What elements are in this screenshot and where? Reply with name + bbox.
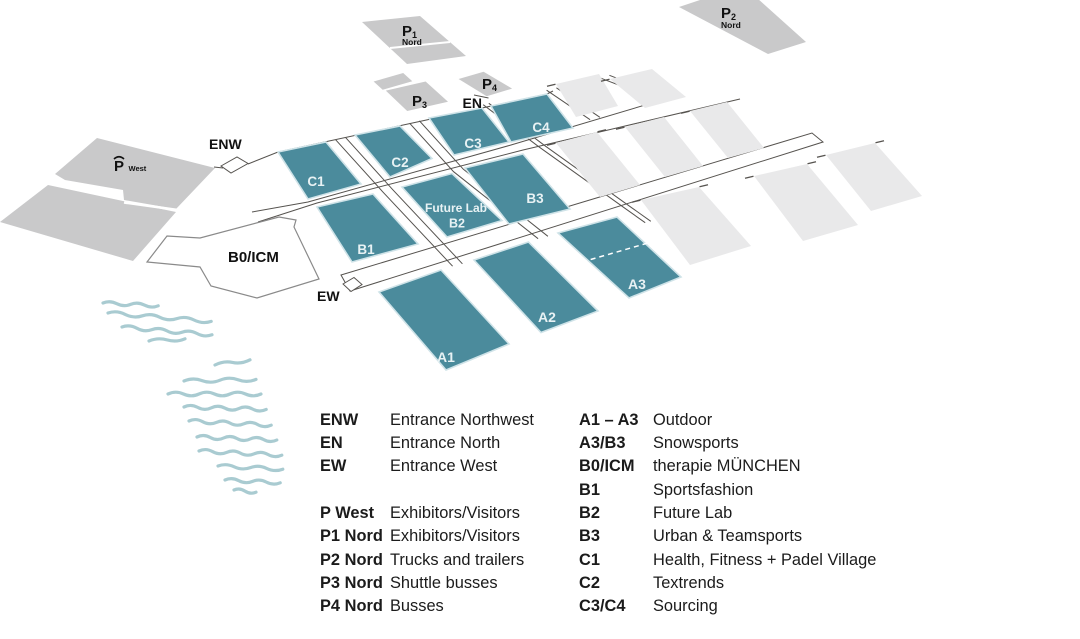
svg-text:B1: B1 bbox=[357, 242, 375, 257]
svg-text:C3: C3 bbox=[464, 136, 482, 151]
svg-text:A1: A1 bbox=[437, 349, 455, 365]
svg-text:B0/ICM: B0/ICM bbox=[228, 249, 279, 266]
svg-text:A3: A3 bbox=[628, 276, 646, 292]
svg-text:Nord: Nord bbox=[721, 20, 741, 30]
svg-text:C1: C1 bbox=[307, 174, 325, 189]
svg-text:P: P bbox=[114, 158, 124, 175]
svg-text:EN: EN bbox=[463, 95, 482, 111]
svg-text:3: 3 bbox=[422, 100, 427, 110]
svg-text:C2: C2 bbox=[391, 155, 408, 170]
svg-text:B2: B2 bbox=[449, 217, 465, 231]
svg-text:EW: EW bbox=[317, 288, 340, 304]
svg-text:Nord: Nord bbox=[402, 37, 422, 47]
svg-text:4: 4 bbox=[492, 83, 497, 93]
svg-text:ENW: ENW bbox=[209, 136, 242, 152]
svg-text:B3: B3 bbox=[526, 191, 544, 206]
svg-text:Future Lab: Future Lab bbox=[425, 201, 487, 215]
svg-text:C4: C4 bbox=[532, 120, 550, 135]
svg-text:A2: A2 bbox=[538, 309, 556, 325]
svg-text:P: P bbox=[412, 93, 422, 110]
svg-text:West: West bbox=[129, 164, 147, 173]
svg-text:P: P bbox=[482, 76, 492, 93]
